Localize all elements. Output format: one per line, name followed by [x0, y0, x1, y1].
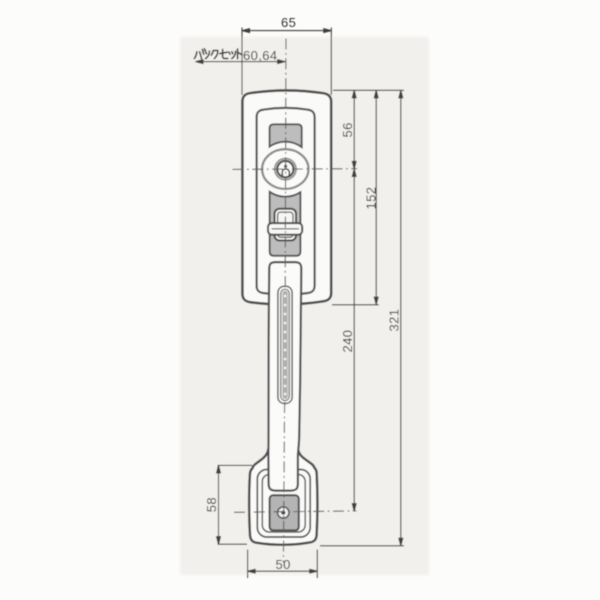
svg-text:58: 58	[204, 497, 219, 512]
svg-text:60,64: 60,64	[243, 48, 278, 63]
svg-text:65: 65	[281, 15, 296, 30]
svg-text:152: 152	[363, 187, 378, 210]
svg-text:56: 56	[340, 122, 355, 137]
svg-text:321: 321	[387, 309, 402, 332]
svg-text:240: 240	[340, 330, 355, 353]
svg-text:50: 50	[276, 557, 291, 572]
